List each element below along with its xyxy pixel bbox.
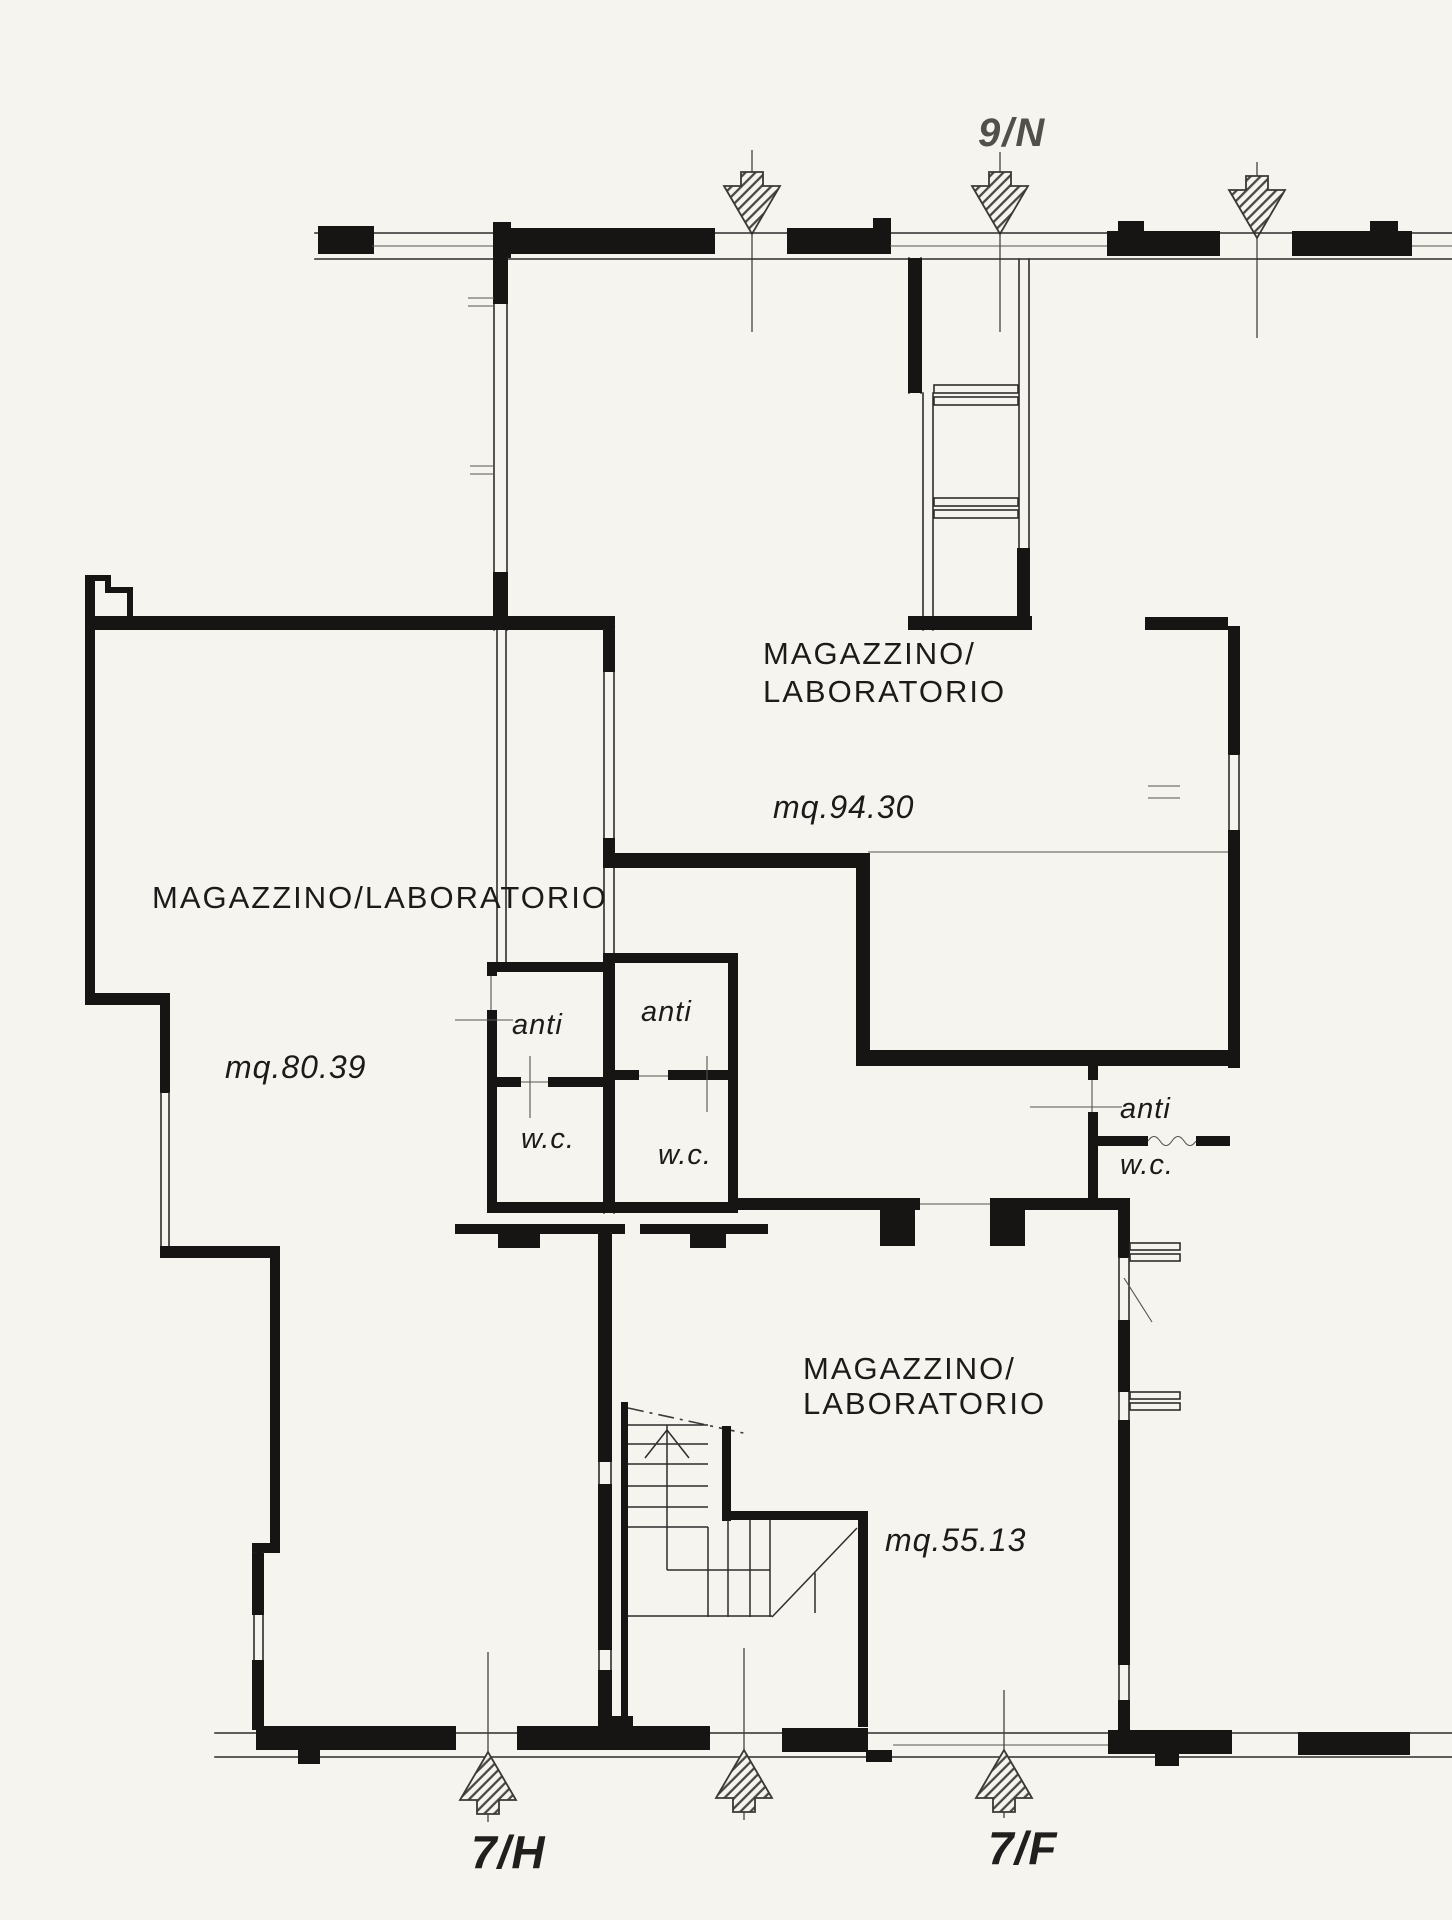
top-room-name-line1: MAGAZZINO/: [763, 636, 976, 671]
entrance-arrow-down-icon: [1229, 176, 1285, 238]
north-wall: [315, 218, 1452, 259]
bottom-room-area: mq.55.13: [885, 1522, 1026, 1558]
wc-left-label: w.c.: [521, 1123, 575, 1155]
unit-label-7h: 7/H: [471, 1826, 546, 1878]
floor-plan-sheet: 9/N MAGAZZINO/ LABORATORIO mq.94.30 MAGA…: [0, 0, 1452, 1920]
entrance-arrow-down-icon: [724, 172, 780, 234]
anti-center-label: anti: [641, 996, 692, 1028]
entrance-arrow-down-icon: [972, 172, 1028, 234]
east-lower-wall: [1118, 1198, 1180, 1732]
wc-right-label: w.c.: [1120, 1149, 1174, 1181]
text-labels: 9/N MAGAZZINO/ LABORATORIO mq.94.30 MAGA…: [152, 111, 1174, 1878]
anti-left-label: anti: [512, 1009, 563, 1041]
stair-hall-west-wall: [598, 1233, 612, 1728]
right-service-room: [1030, 1066, 1230, 1210]
south-wall: [215, 1716, 1452, 1766]
entrance-arrow-up-icon: [716, 1750, 772, 1812]
central-upper-wall: [468, 258, 508, 962]
top-room-area: mq.94.30: [773, 789, 914, 825]
unit-label-9n: 9/N: [978, 111, 1046, 155]
bottom-room-name-line2: LABORATORIO: [803, 1386, 1046, 1421]
unit-label-7f: 7/F: [988, 1822, 1058, 1874]
flexible-wall-icon: [1148, 1137, 1196, 1146]
corridor-walls: [615, 852, 1240, 1246]
entrance-arrow-up-icon: [460, 1752, 516, 1814]
wc-center-label: w.c.: [658, 1139, 712, 1171]
entrance-arrow-up-icon: [976, 1750, 1032, 1812]
central-service-block: [455, 630, 768, 1248]
east-outer-wall: [1148, 626, 1240, 1068]
bottom-room-name-line1: MAGAZZINO/: [803, 1351, 1016, 1386]
east-shaft-walls: [908, 258, 1228, 630]
top-room-name-line2: LABORATORIO: [763, 674, 1006, 709]
level-mark-icon: [1148, 786, 1180, 798]
left-room-area: mq.80.39: [225, 1049, 366, 1085]
floor-plan-drawing: 9/N MAGAZZINO/ LABORATORIO mq.94.30 MAGA…: [0, 0, 1452, 1920]
anti-right-label: anti: [1120, 1093, 1171, 1125]
left-room-name: MAGAZZINO/LABORATORIO: [152, 880, 608, 915]
